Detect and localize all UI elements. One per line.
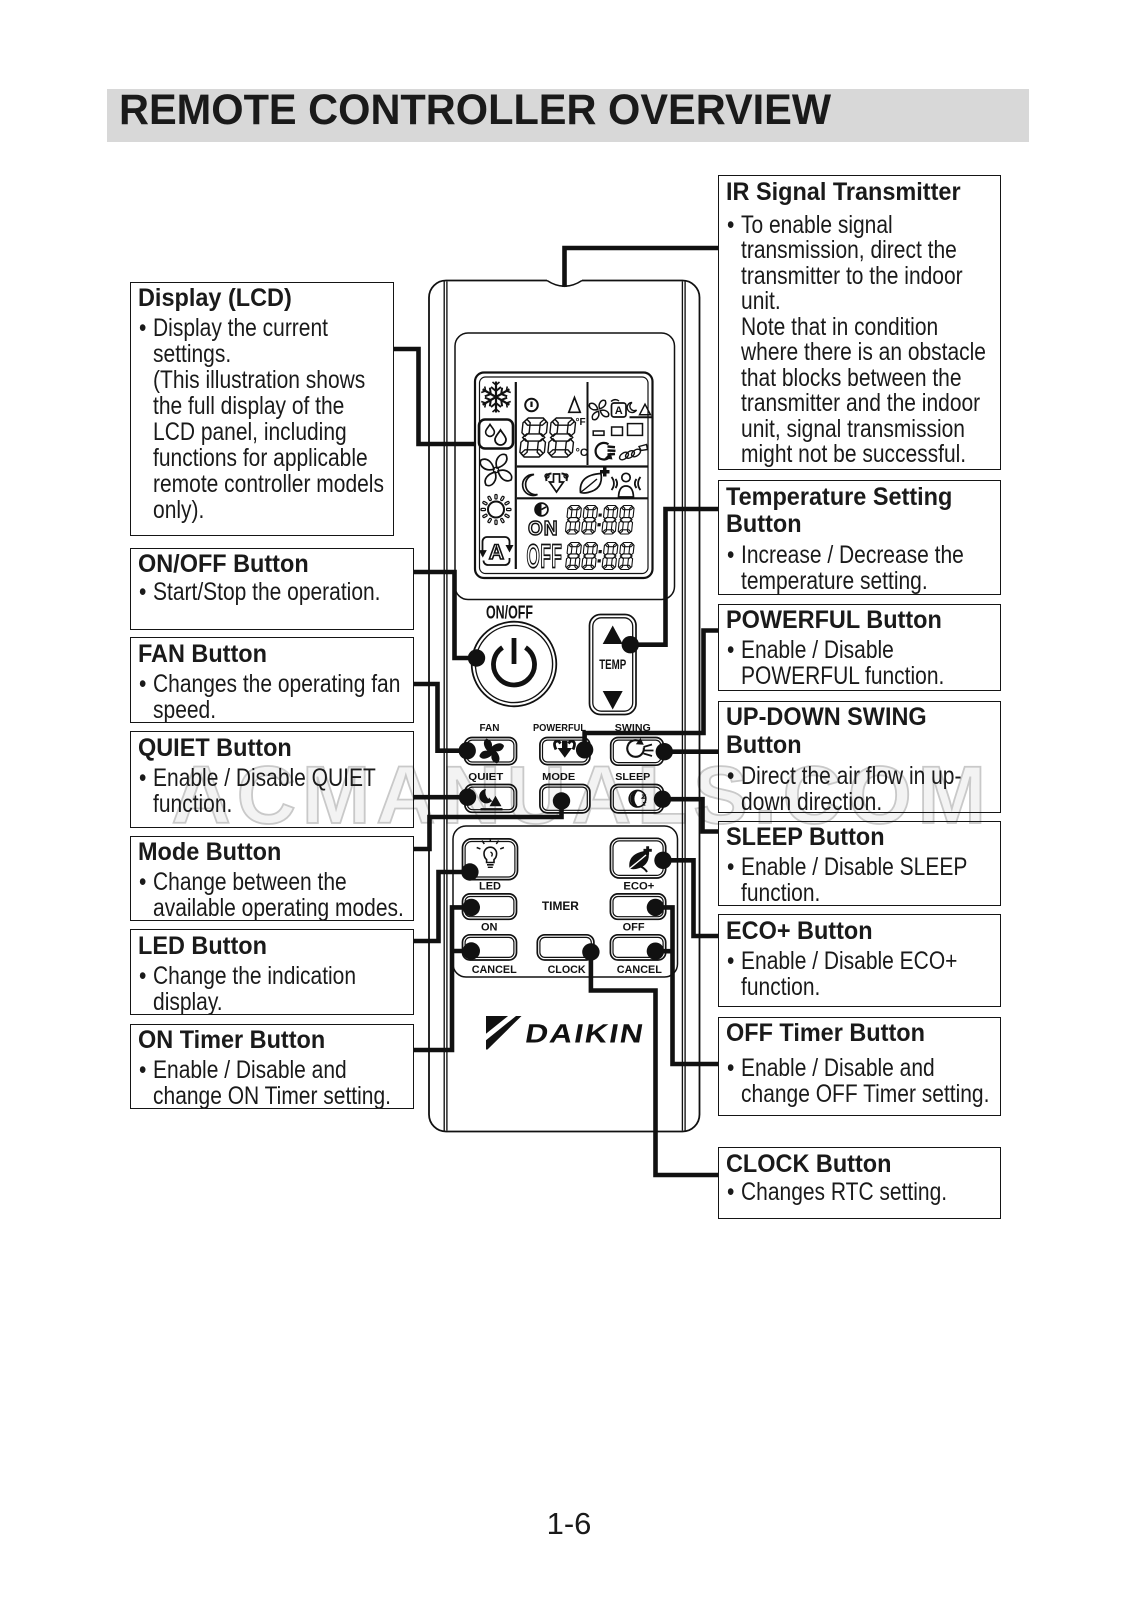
svg-text:°F: °F — [576, 417, 586, 428]
svg-text:TEMP: TEMP — [599, 657, 626, 672]
svg-text:POWERFUL: POWERFUL — [533, 723, 586, 734]
svg-text:OFF: OFF — [623, 921, 645, 933]
svg-text:ECO+: ECO+ — [623, 881, 654, 893]
svg-text:CLOCK: CLOCK — [548, 964, 586, 976]
svg-text:FAN: FAN — [480, 723, 500, 734]
svg-text:A: A — [615, 405, 623, 417]
svg-text:TIMER: TIMER — [542, 901, 580, 913]
svg-text:ON/OFF: ON/OFF — [486, 602, 533, 623]
svg-text:ON: ON — [481, 921, 498, 933]
svg-text:DAIKIN: DAIKIN — [523, 1019, 647, 1049]
svg-text:CANCEL: CANCEL — [617, 964, 662, 976]
svg-text:CANCEL: CANCEL — [472, 964, 517, 976]
svg-text:°C: °C — [576, 447, 588, 459]
svg-text:OFF: OFF — [527, 537, 563, 575]
svg-text:MODE: MODE — [542, 772, 575, 783]
svg-text:A: A — [489, 541, 504, 564]
svg-text:SLEEP: SLEEP — [615, 772, 650, 783]
svg-text:QUIET: QUIET — [468, 772, 503, 783]
svg-text:LED: LED — [479, 881, 501, 893]
